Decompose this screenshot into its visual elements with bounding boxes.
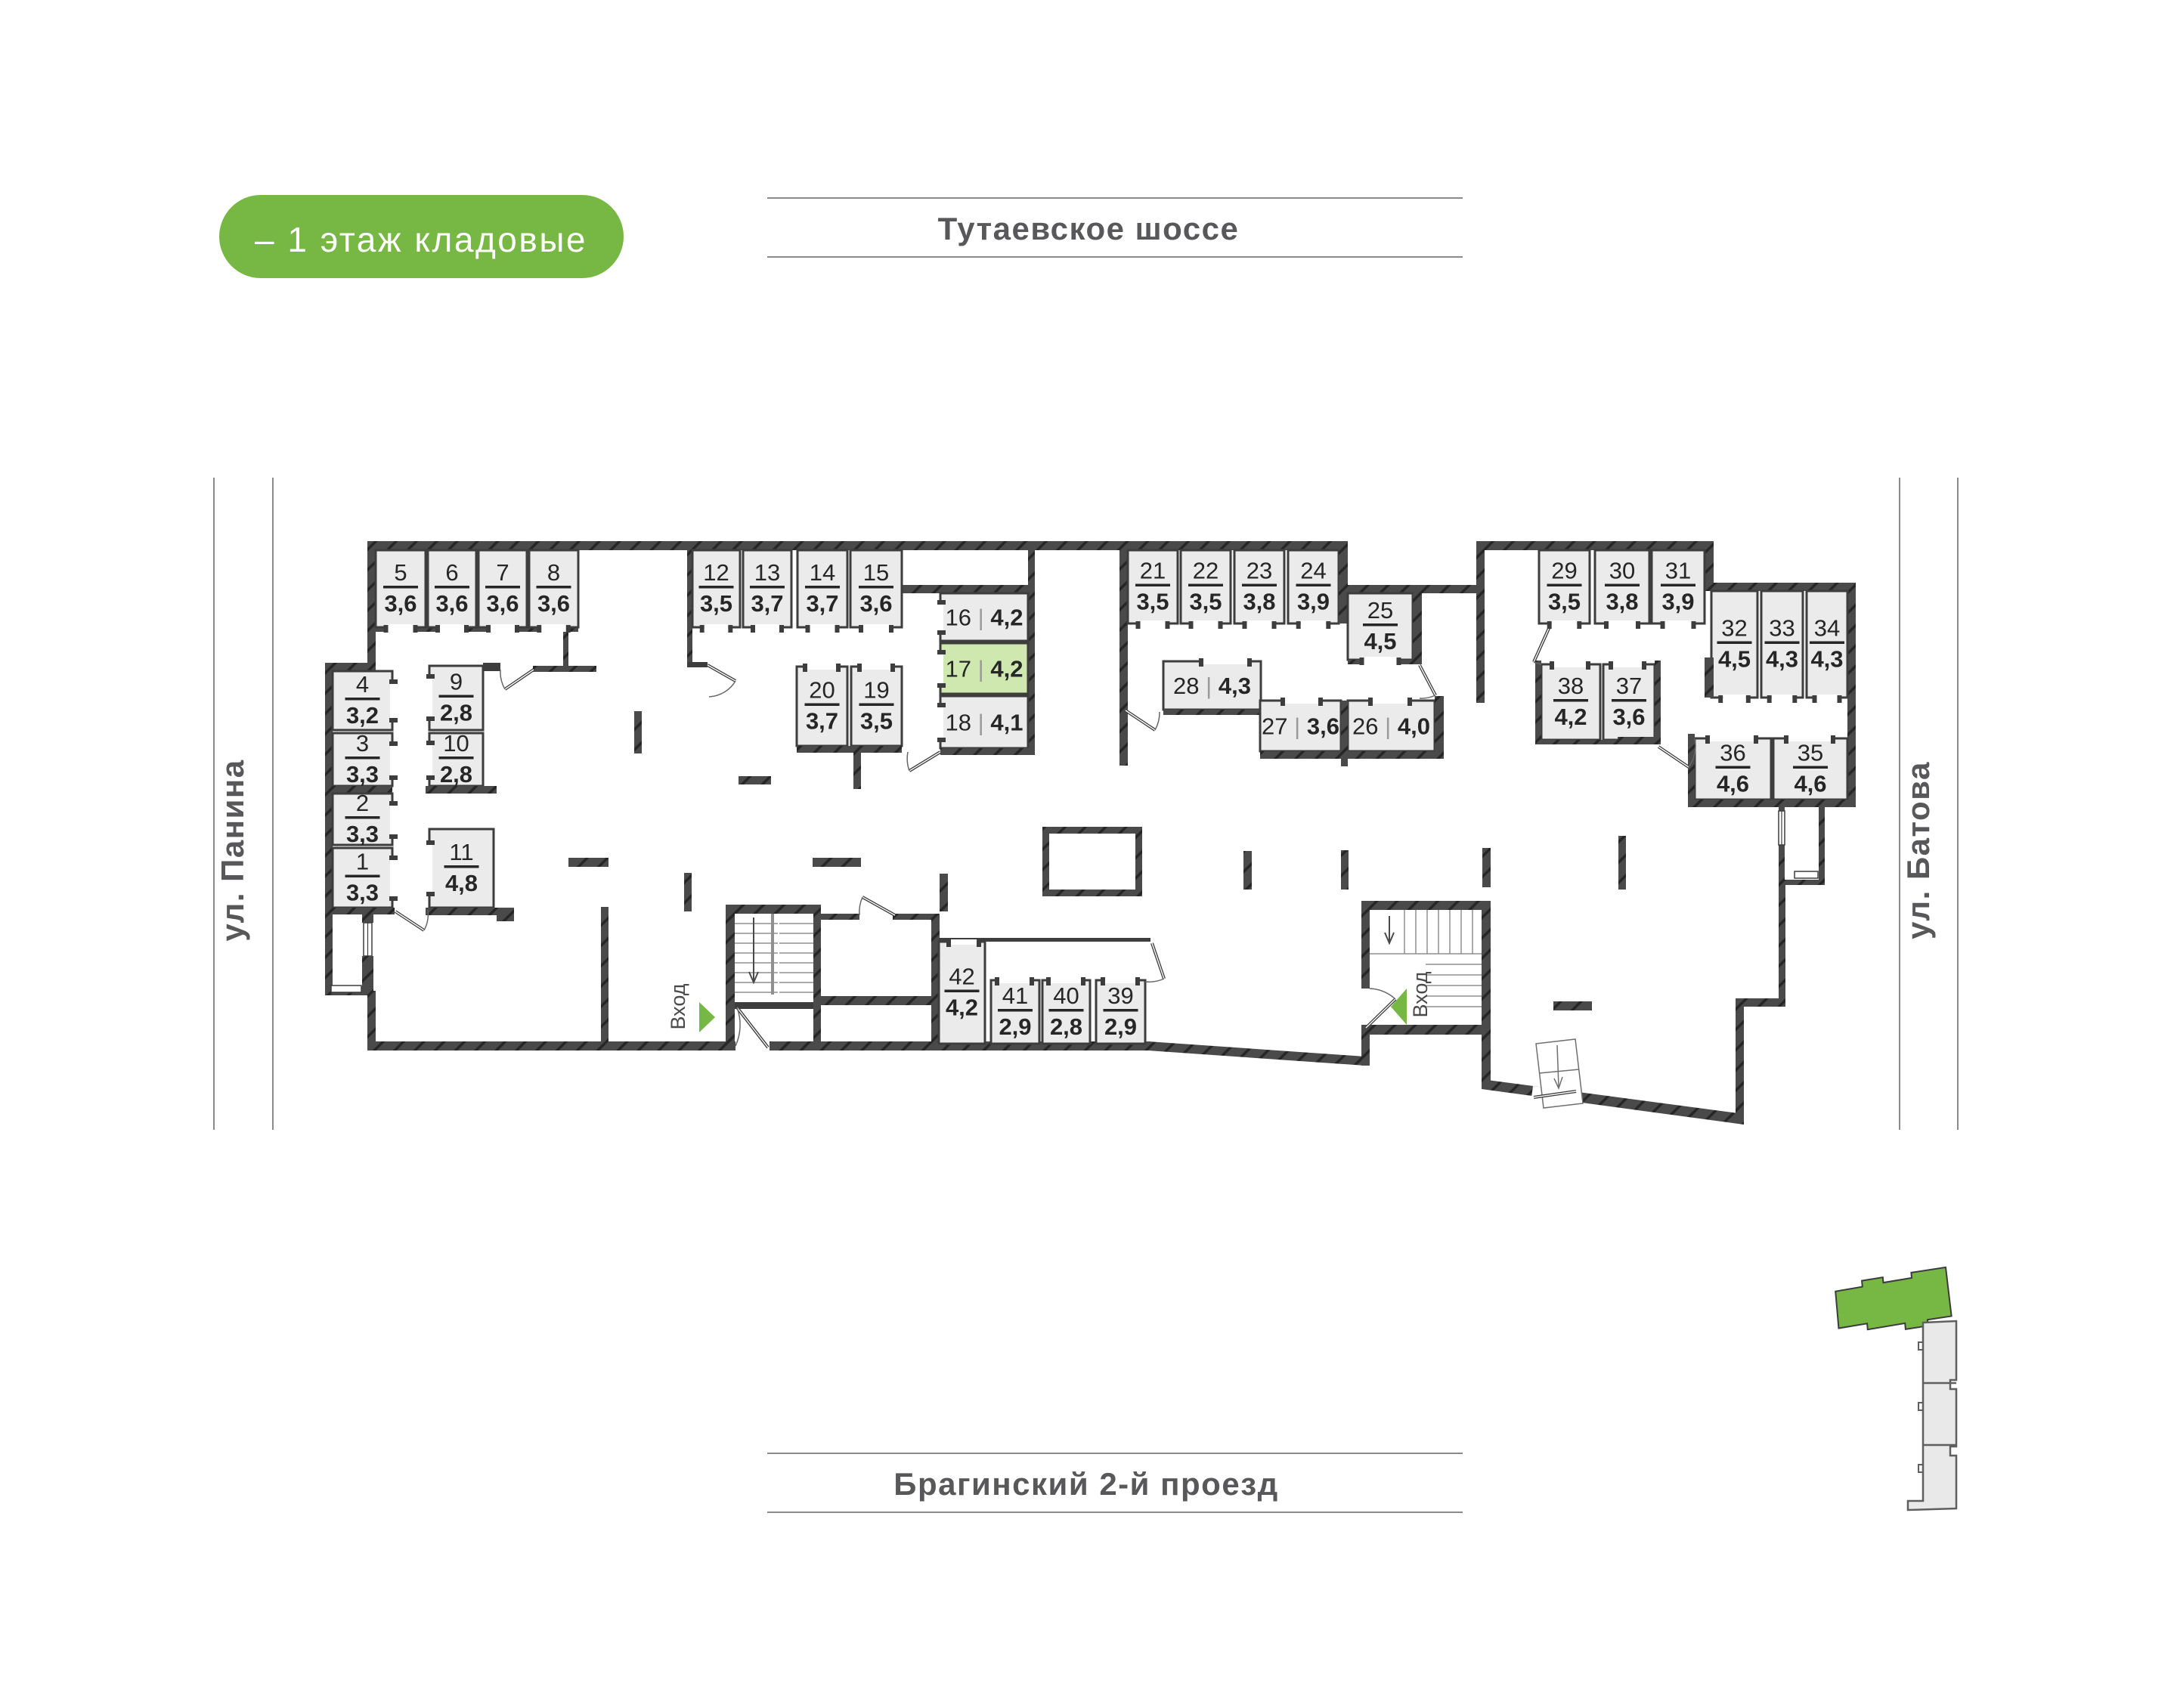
svg-text:33: 33 — [1769, 615, 1795, 642]
svg-text:3,5: 3,5 — [1189, 589, 1222, 615]
svg-text:38: 38 — [1558, 673, 1584, 699]
svg-text:35: 35 — [1798, 740, 1823, 766]
svg-text:41: 41 — [1002, 982, 1028, 1009]
svg-text:21: 21 — [1140, 558, 1166, 584]
svg-text:3,3: 3,3 — [346, 880, 379, 906]
svg-text:4,3: 4,3 — [1810, 646, 1843, 673]
svg-text:3,8: 3,8 — [1243, 589, 1275, 615]
svg-text:3,5: 3,5 — [860, 708, 893, 735]
svg-text:3,6: 3,6 — [486, 590, 519, 617]
svg-text:4,5: 4,5 — [1718, 646, 1751, 673]
svg-text:Тутаевское шоссе: Тутаевское шоссе — [938, 211, 1240, 246]
svg-text:13: 13 — [754, 559, 780, 586]
svg-text:4,2: 4,2 — [1554, 704, 1587, 730]
svg-text:8: 8 — [547, 559, 560, 586]
svg-text:15: 15 — [863, 559, 889, 586]
svg-text:3,7: 3,7 — [751, 590, 783, 617]
svg-text:25: 25 — [1367, 597, 1393, 623]
svg-text:3,3: 3,3 — [346, 821, 379, 847]
svg-text:4,2: 4,2 — [946, 995, 978, 1021]
svg-text:– 1 этаж кладовые: – 1 этаж кладовые — [255, 220, 587, 259]
svg-text:2,8: 2,8 — [440, 761, 472, 787]
svg-text:3,5: 3,5 — [1136, 589, 1169, 615]
svg-text:29: 29 — [1551, 558, 1577, 584]
svg-text:27 | 3,6: 27 | 3,6 — [1262, 713, 1339, 740]
svg-text:4,5: 4,5 — [1364, 628, 1396, 654]
svg-text:3,6: 3,6 — [1612, 704, 1645, 730]
svg-text:ул. Батова: ул. Батова — [1900, 761, 1936, 939]
svg-text:3,9: 3,9 — [1297, 589, 1330, 615]
svg-text:Вход: Вход — [1409, 971, 1432, 1017]
svg-text:17 | 4,2: 17 | 4,2 — [946, 656, 1023, 682]
svg-text:5: 5 — [394, 559, 407, 586]
svg-text:3,6: 3,6 — [384, 590, 417, 617]
svg-text:37: 37 — [1616, 673, 1642, 699]
svg-text:4,6: 4,6 — [1717, 771, 1749, 797]
svg-text:30: 30 — [1609, 558, 1635, 584]
svg-text:32: 32 — [1721, 615, 1747, 642]
svg-text:42: 42 — [949, 964, 974, 990]
svg-text:3,8: 3,8 — [1606, 589, 1638, 615]
svg-text:3,6: 3,6 — [859, 590, 892, 617]
svg-text:23: 23 — [1246, 558, 1272, 584]
svg-text:3,2: 3,2 — [346, 702, 379, 729]
svg-text:40: 40 — [1053, 982, 1079, 1009]
svg-text:22: 22 — [1193, 558, 1219, 584]
svg-text:2: 2 — [356, 790, 369, 816]
svg-text:2,8: 2,8 — [1050, 1013, 1082, 1040]
svg-text:ул. Панина: ул. Панина — [215, 759, 250, 941]
svg-text:31: 31 — [1665, 558, 1691, 584]
svg-text:36: 36 — [1720, 740, 1745, 766]
svg-text:7: 7 — [496, 559, 509, 586]
svg-text:3,9: 3,9 — [1661, 589, 1694, 615]
svg-text:2,9: 2,9 — [999, 1013, 1031, 1040]
svg-text:9: 9 — [450, 669, 463, 695]
svg-text:2,9: 2,9 — [1104, 1013, 1137, 1040]
svg-text:12: 12 — [703, 559, 729, 586]
svg-text:4,3: 4,3 — [1766, 646, 1798, 673]
svg-text:3,6: 3,6 — [537, 590, 570, 617]
svg-text:28 | 4,3: 28 | 4,3 — [1173, 673, 1251, 699]
svg-text:2,8: 2,8 — [440, 700, 472, 726]
svg-text:6: 6 — [445, 559, 458, 586]
svg-text:Брагинский 2-й проезд: Брагинский 2-й проезд — [893, 1466, 1278, 1502]
svg-text:3,5: 3,5 — [700, 590, 732, 617]
svg-text:26 | 4,0: 26 | 4,0 — [1352, 713, 1430, 740]
svg-text:3,7: 3,7 — [806, 590, 838, 617]
svg-text:3,6: 3,6 — [435, 590, 468, 617]
svg-text:3,3: 3,3 — [346, 761, 379, 787]
svg-text:34: 34 — [1814, 615, 1840, 642]
svg-text:11: 11 — [449, 839, 473, 865]
svg-text:4: 4 — [356, 671, 369, 698]
svg-text:10: 10 — [443, 730, 469, 757]
svg-text:18 | 4,1: 18 | 4,1 — [946, 710, 1023, 736]
svg-text:20: 20 — [809, 677, 835, 704]
svg-text:3: 3 — [356, 730, 369, 757]
svg-text:3,7: 3,7 — [806, 708, 838, 735]
svg-text:1: 1 — [356, 849, 369, 875]
svg-text:14: 14 — [810, 559, 835, 586]
svg-text:24: 24 — [1300, 558, 1326, 584]
svg-text:39: 39 — [1107, 982, 1133, 1009]
svg-text:4,8: 4,8 — [445, 870, 478, 896]
svg-text:Вход: Вход — [667, 983, 689, 1029]
svg-text:3,5: 3,5 — [1548, 589, 1581, 615]
svg-text:4,6: 4,6 — [1794, 771, 1826, 797]
svg-text:16 | 4,2: 16 | 4,2 — [946, 605, 1023, 631]
svg-text:19: 19 — [863, 677, 889, 704]
